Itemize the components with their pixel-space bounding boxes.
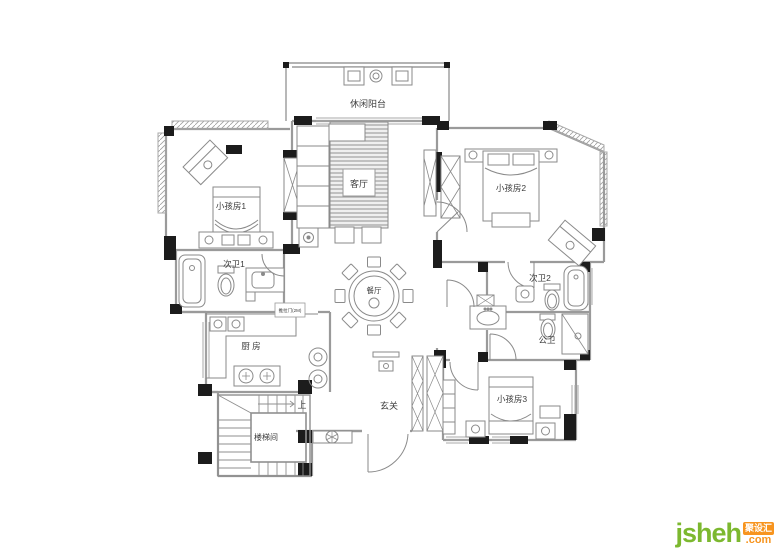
dresser — [199, 232, 273, 248]
kitchen-sink — [210, 317, 244, 331]
stove — [234, 366, 280, 386]
bath2-fixtures — [508, 262, 588, 310]
shower — [562, 314, 588, 354]
room-label-pubbath: 公卫 — [538, 335, 556, 345]
site-logo-suffix: .com — [746, 535, 772, 546]
room-label-kitchen: 厨 房 — [241, 341, 260, 351]
room-label-kid2: 小孩房2 — [496, 183, 527, 193]
kid1-furniture — [183, 140, 273, 248]
room-label-kid3: 小孩房3 — [497, 394, 528, 404]
up-arrow — [258, 401, 294, 407]
shoe-bench — [313, 431, 352, 443]
corridor-basin — [470, 306, 506, 329]
water-heater — [309, 348, 327, 366]
public-bath-door — [490, 334, 516, 360]
room-label-living: 客厅 — [350, 178, 368, 189]
room-label-bath2: 次卫2 — [529, 273, 551, 283]
mirror-cabinet — [477, 295, 494, 306]
wardrobe-kid2 — [441, 156, 460, 218]
intercom — [373, 352, 399, 371]
room-label-dining: 餐厅 — [367, 286, 382, 295]
foyer-items — [313, 352, 408, 472]
nightstand — [466, 421, 485, 437]
dining-table — [349, 271, 399, 321]
stool — [335, 227, 354, 243]
balcony-items — [344, 67, 412, 85]
floor-plan-page: 休闲阳台 客厅 小孩房1 次卫1 厨 房 楼梯间 上 玄关 餐厅 小孩房2 次卫… — [0, 0, 780, 551]
stool — [540, 406, 560, 418]
corridor-door — [447, 280, 474, 307]
hallway-cabinet-strips — [412, 356, 443, 431]
label-up: 上 — [297, 400, 306, 410]
plant — [370, 70, 382, 82]
desk — [548, 220, 595, 266]
room-label-stairwell: 楼梯间 — [254, 432, 278, 442]
dining-set — [335, 257, 413, 335]
wardrobe-kid3 — [443, 380, 455, 434]
vanity-sink — [246, 268, 284, 301]
entry-door — [368, 434, 408, 472]
floor-lamp — [299, 228, 318, 247]
room-label-bath1: 次卫1 — [223, 259, 245, 269]
site-logo-text: jsheh — [675, 520, 741, 547]
room-label-balcony: 休闲阳台 — [350, 98, 386, 109]
room-label-kid1: 小孩房1 — [216, 201, 247, 211]
bed — [489, 377, 533, 434]
bathtub — [179, 255, 205, 307]
stool — [362, 227, 381, 243]
water-heater — [309, 370, 327, 388]
site-logo: jsheh 聚设汇 .com — [675, 520, 774, 547]
floor-plan-drawing: 休闲阳台 客厅 小孩房1 次卫1 厨 房 楼梯间 上 玄关 餐厅 小孩房2 次卫… — [0, 0, 780, 551]
desk — [183, 140, 228, 185]
bathtub — [564, 266, 588, 310]
small-sink — [516, 286, 534, 302]
kitchen-fixtures — [206, 303, 327, 388]
kitchen-door-note: 推拉门(2M) — [279, 307, 302, 314]
tv-cabinet — [424, 150, 436, 216]
room-label-foyer: 玄关 — [380, 400, 398, 411]
kid2-furniture — [437, 149, 596, 266]
toilet — [218, 266, 234, 296]
toilet — [544, 284, 560, 310]
nightstand — [536, 423, 555, 439]
